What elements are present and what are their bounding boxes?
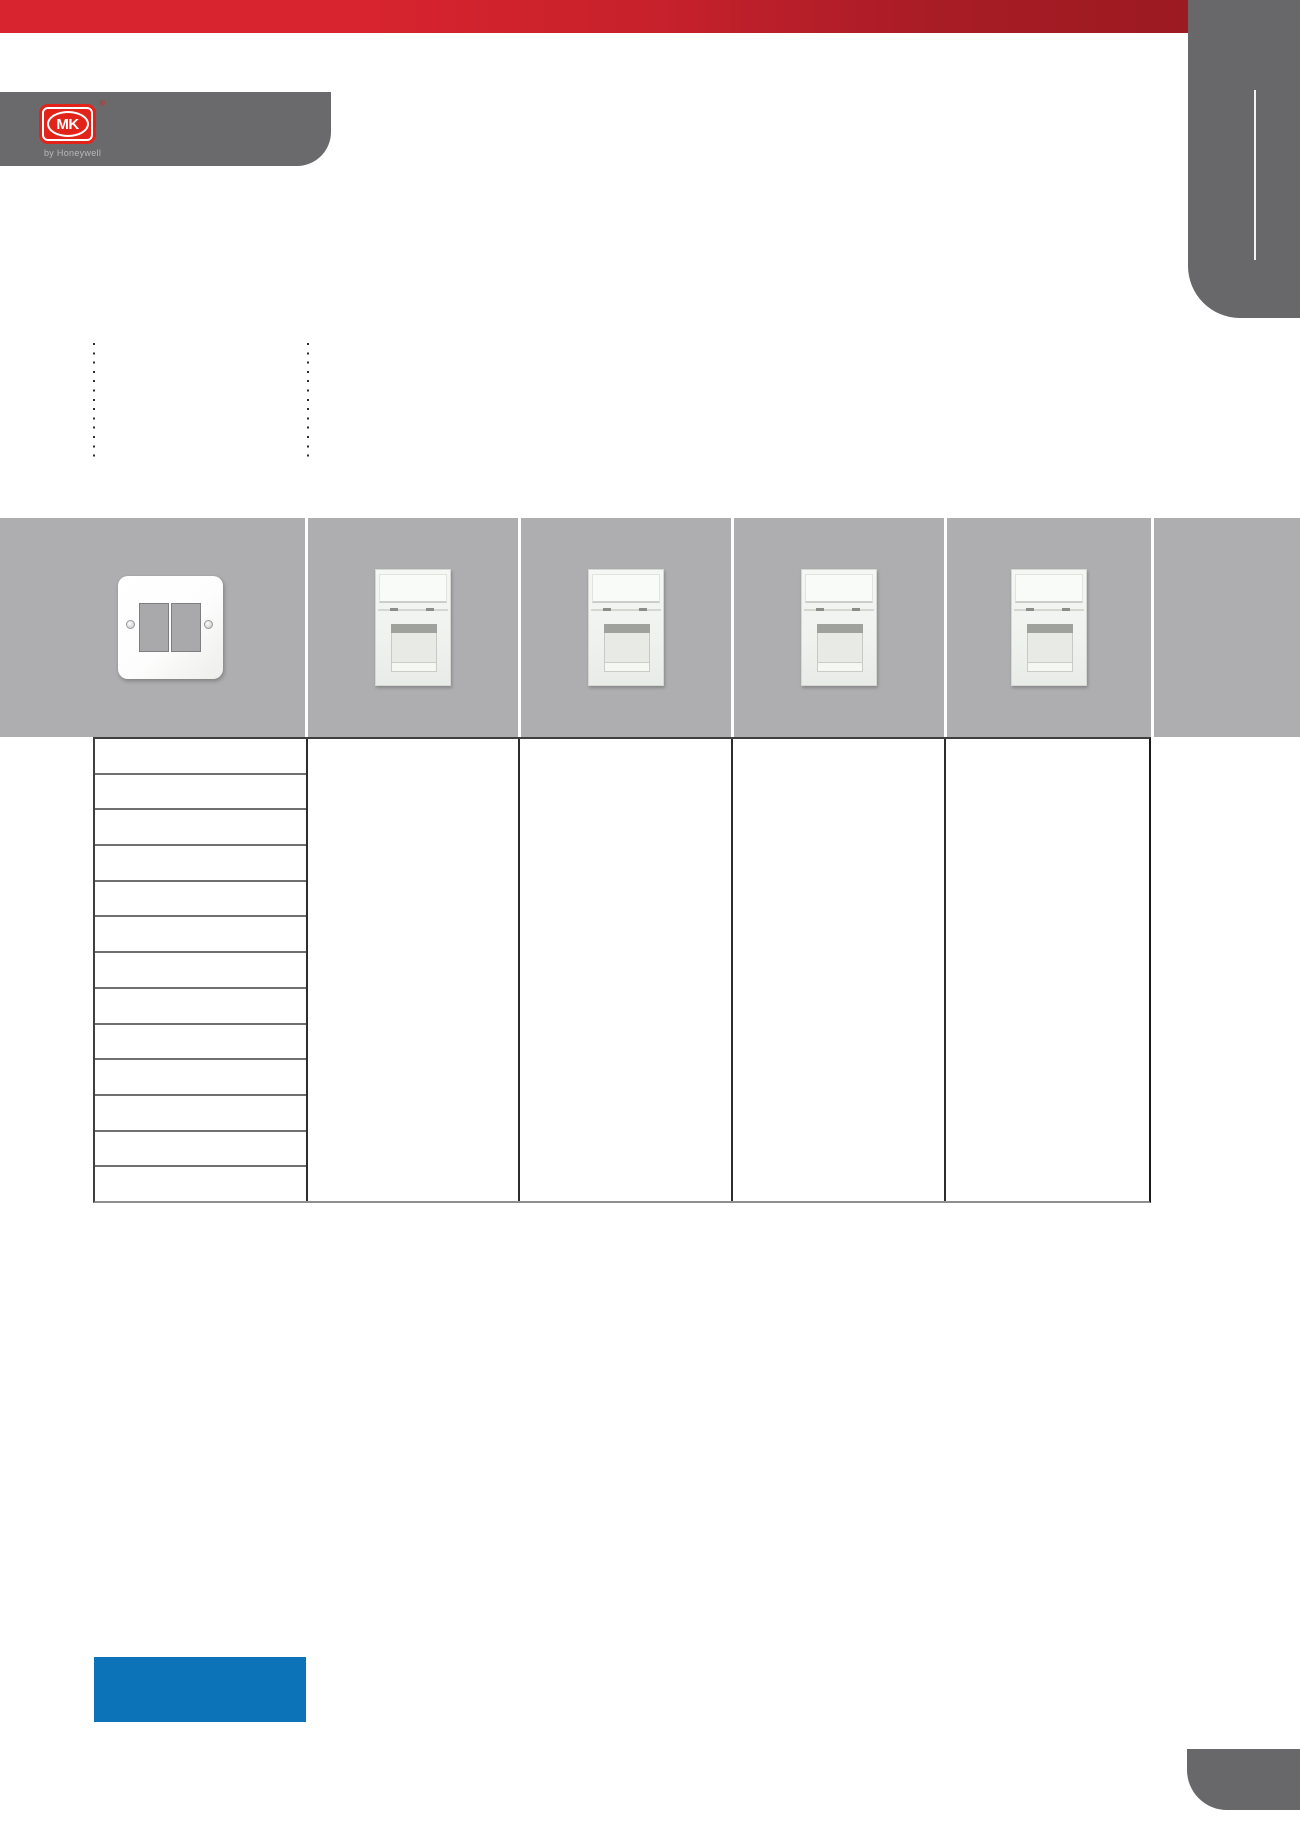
highlight-block [94, 1657, 306, 1722]
table-row [95, 882, 308, 918]
mk-logo-text: MK [56, 117, 78, 132]
module-shutter [817, 624, 863, 672]
module-groove [591, 609, 661, 611]
part-number-column [95, 739, 308, 1201]
column-divider [518, 739, 520, 1201]
top-accent-bar [0, 0, 1188, 33]
dotted-guide-right [307, 343, 309, 464]
top-right-tab [1188, 0, 1300, 318]
column-divider [306, 739, 308, 1201]
module-groove [378, 609, 448, 611]
table-row [95, 810, 308, 846]
module-label-window [1015, 574, 1083, 603]
rj45-module-image [801, 569, 877, 686]
tab-divider-line [1254, 90, 1256, 260]
bottom-right-tab [1187, 1749, 1300, 1810]
header-cell-empty [1154, 518, 1300, 737]
table-row [95, 1025, 308, 1061]
header-cell-frontplate [0, 518, 305, 737]
header-cell-module-3 [734, 518, 944, 737]
module-label-window [805, 574, 873, 603]
table-row [95, 1167, 308, 1201]
screw-hole-icon [126, 620, 135, 629]
rj45-module-image [588, 569, 664, 686]
table-row [95, 989, 308, 1025]
module-label-window [379, 574, 447, 603]
brand-header-box: MK ® by Honeywell [0, 92, 331, 166]
header-cell-module-1 [308, 518, 518, 737]
registered-trademark: ® [99, 100, 105, 108]
rj45-module-image [375, 569, 451, 686]
mk-logo-ellipse: MK [47, 111, 89, 137]
table-row [95, 953, 308, 989]
mk-logo: MK ® [39, 104, 96, 144]
column-divider [944, 739, 946, 1201]
table-row [95, 739, 308, 775]
module-groove [1014, 609, 1084, 611]
table-row [95, 1132, 308, 1168]
dotted-guide-left [93, 343, 95, 464]
aperture-left [139, 603, 169, 652]
module-groove [804, 609, 874, 611]
rj45-module-image [1011, 569, 1087, 686]
frontplate-2gang-image [118, 576, 223, 679]
screw-hole-icon [204, 620, 213, 629]
module-label-window [592, 574, 660, 603]
table-row [95, 917, 308, 953]
brand-tagline: by Honeywell [44, 148, 101, 158]
aperture-right [171, 603, 201, 652]
module-shutter [391, 624, 437, 672]
products-table [93, 737, 1151, 1203]
table-row [95, 846, 308, 882]
frontplate-apertures [139, 603, 201, 652]
table-row [95, 1096, 308, 1132]
table-header-band [0, 518, 1300, 737]
module-shutter [604, 624, 650, 672]
mk-logo-inner-border: MK [42, 107, 93, 141]
module-shutter [1027, 624, 1073, 672]
table-row [95, 1060, 308, 1096]
column-divider [731, 739, 733, 1201]
header-cell-module-2 [521, 518, 731, 737]
header-cell-module-4 [947, 518, 1151, 737]
table-row [95, 775, 308, 811]
